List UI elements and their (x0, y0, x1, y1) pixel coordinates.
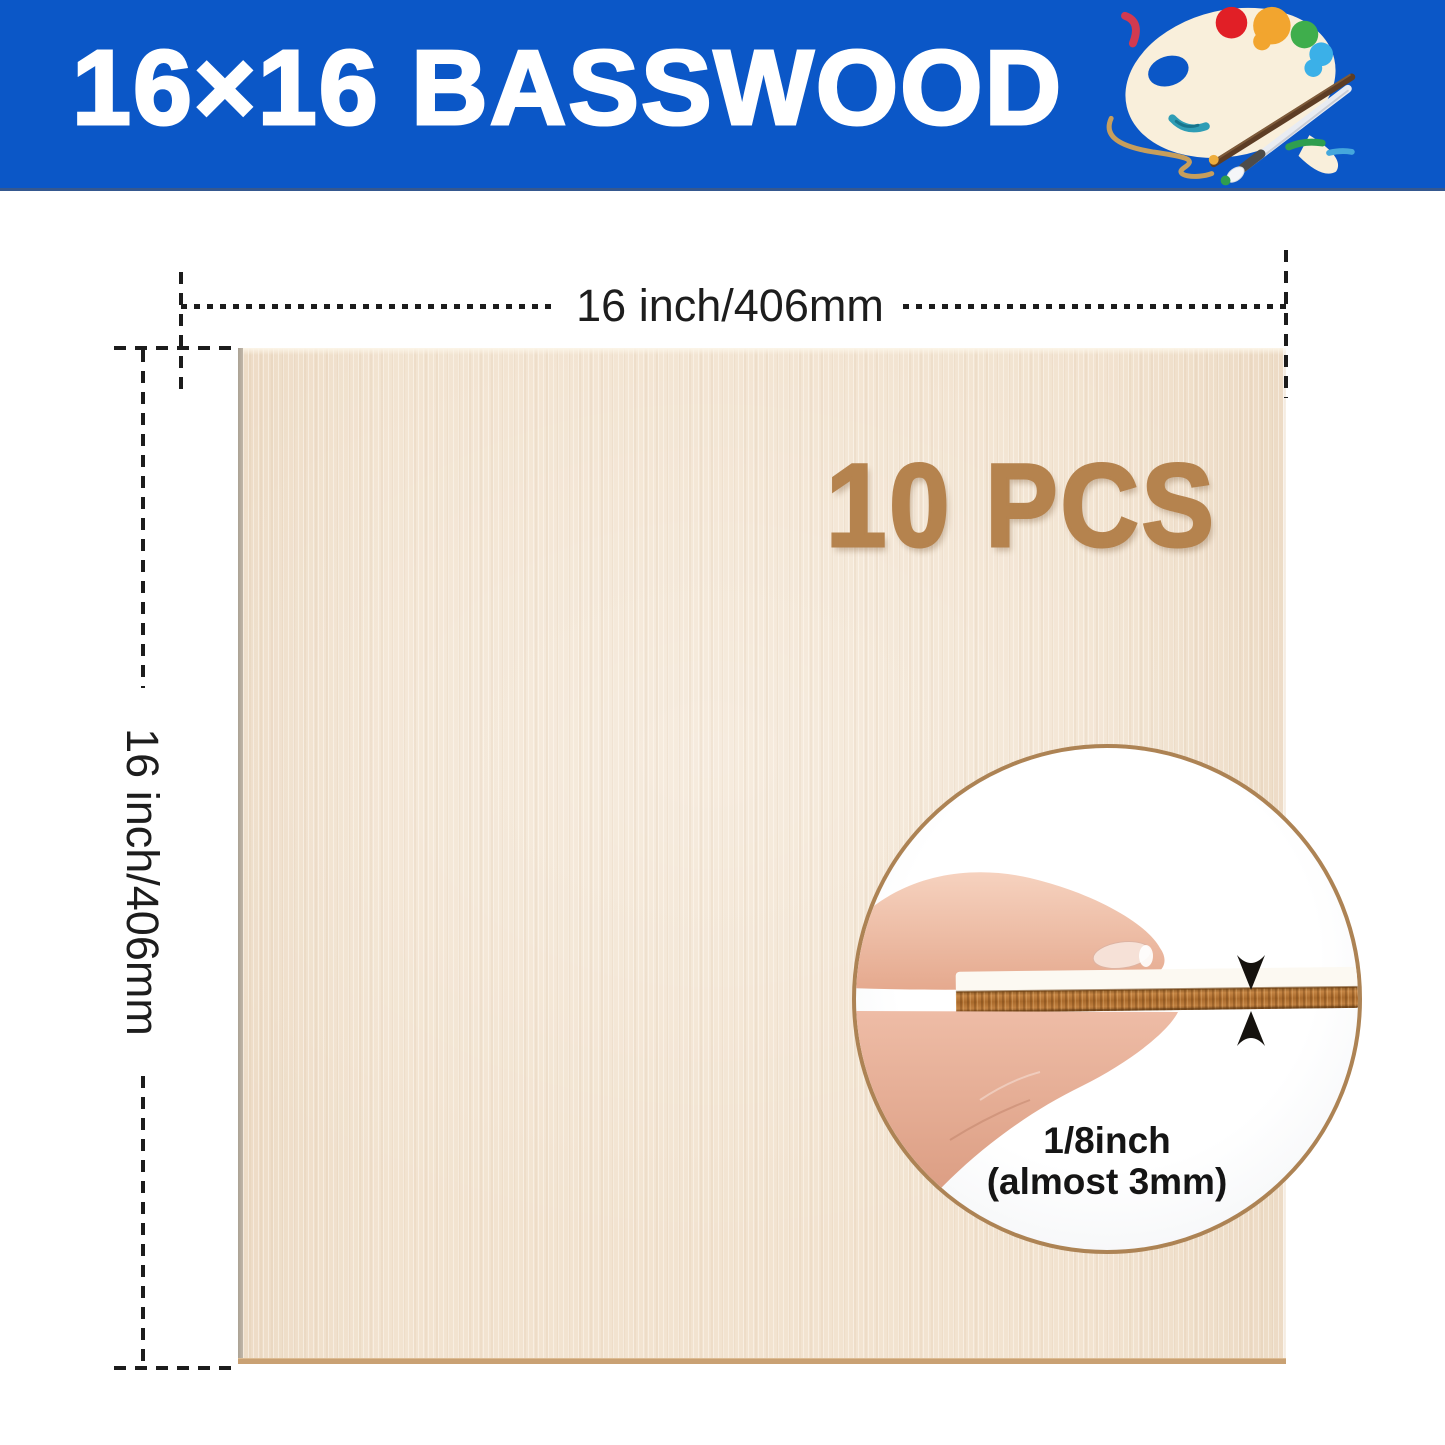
blue-paint-blob-tail (1304, 59, 1322, 77)
arrow-up-icon (1237, 1011, 1265, 1046)
blue-paint-stroke (1329, 151, 1352, 153)
width-dimension-label: 16 inch/406mm (555, 280, 905, 332)
header-banner: 16×16 BASSWOOD (0, 0, 1445, 191)
fingernail-tip (1139, 945, 1153, 967)
board-left-edge (238, 348, 243, 1364)
width-dimension-line-left (181, 304, 555, 309)
green-paint-dab (1221, 176, 1231, 186)
width-extension-line-left (179, 272, 183, 396)
height-dimension-line-bottom (141, 1076, 145, 1368)
height-extension-line-bottom (114, 1366, 240, 1370)
thickness-magnifier: 1/8inch (almost 3mm) (852, 744, 1362, 1254)
thickness-label-line2: (almost 3mm) (856, 1161, 1358, 1202)
piece-count-label: 10 PCS (826, 438, 1217, 574)
height-extension-line-top (114, 346, 238, 350)
orange-paint-blob-tail (1253, 33, 1271, 51)
red-paint-stroke (1125, 16, 1136, 44)
width-extension-line-right (1284, 250, 1288, 398)
product-image: 16×16 BASSWOOD (0, 0, 1445, 1445)
thickness-label-line1: 1/8inch (856, 1120, 1358, 1161)
board-bottom-edge (238, 1358, 1286, 1364)
page-title: 16×16 BASSWOOD (72, 28, 1063, 148)
brush-ferrule (1243, 154, 1261, 168)
height-dimension-label: 16 inch/406mm (118, 707, 168, 1057)
yellow-paint-dab (1209, 155, 1219, 165)
board-top-edge (238, 348, 1286, 355)
paint-palette-icon (1085, 2, 1445, 214)
wood-sheet-edge (956, 967, 1358, 1013)
red-paint-blob (1216, 7, 1248, 39)
green-paint-blob (1291, 21, 1319, 49)
height-dimension-line-top (141, 350, 145, 688)
width-dimension-line-right (903, 304, 1286, 309)
